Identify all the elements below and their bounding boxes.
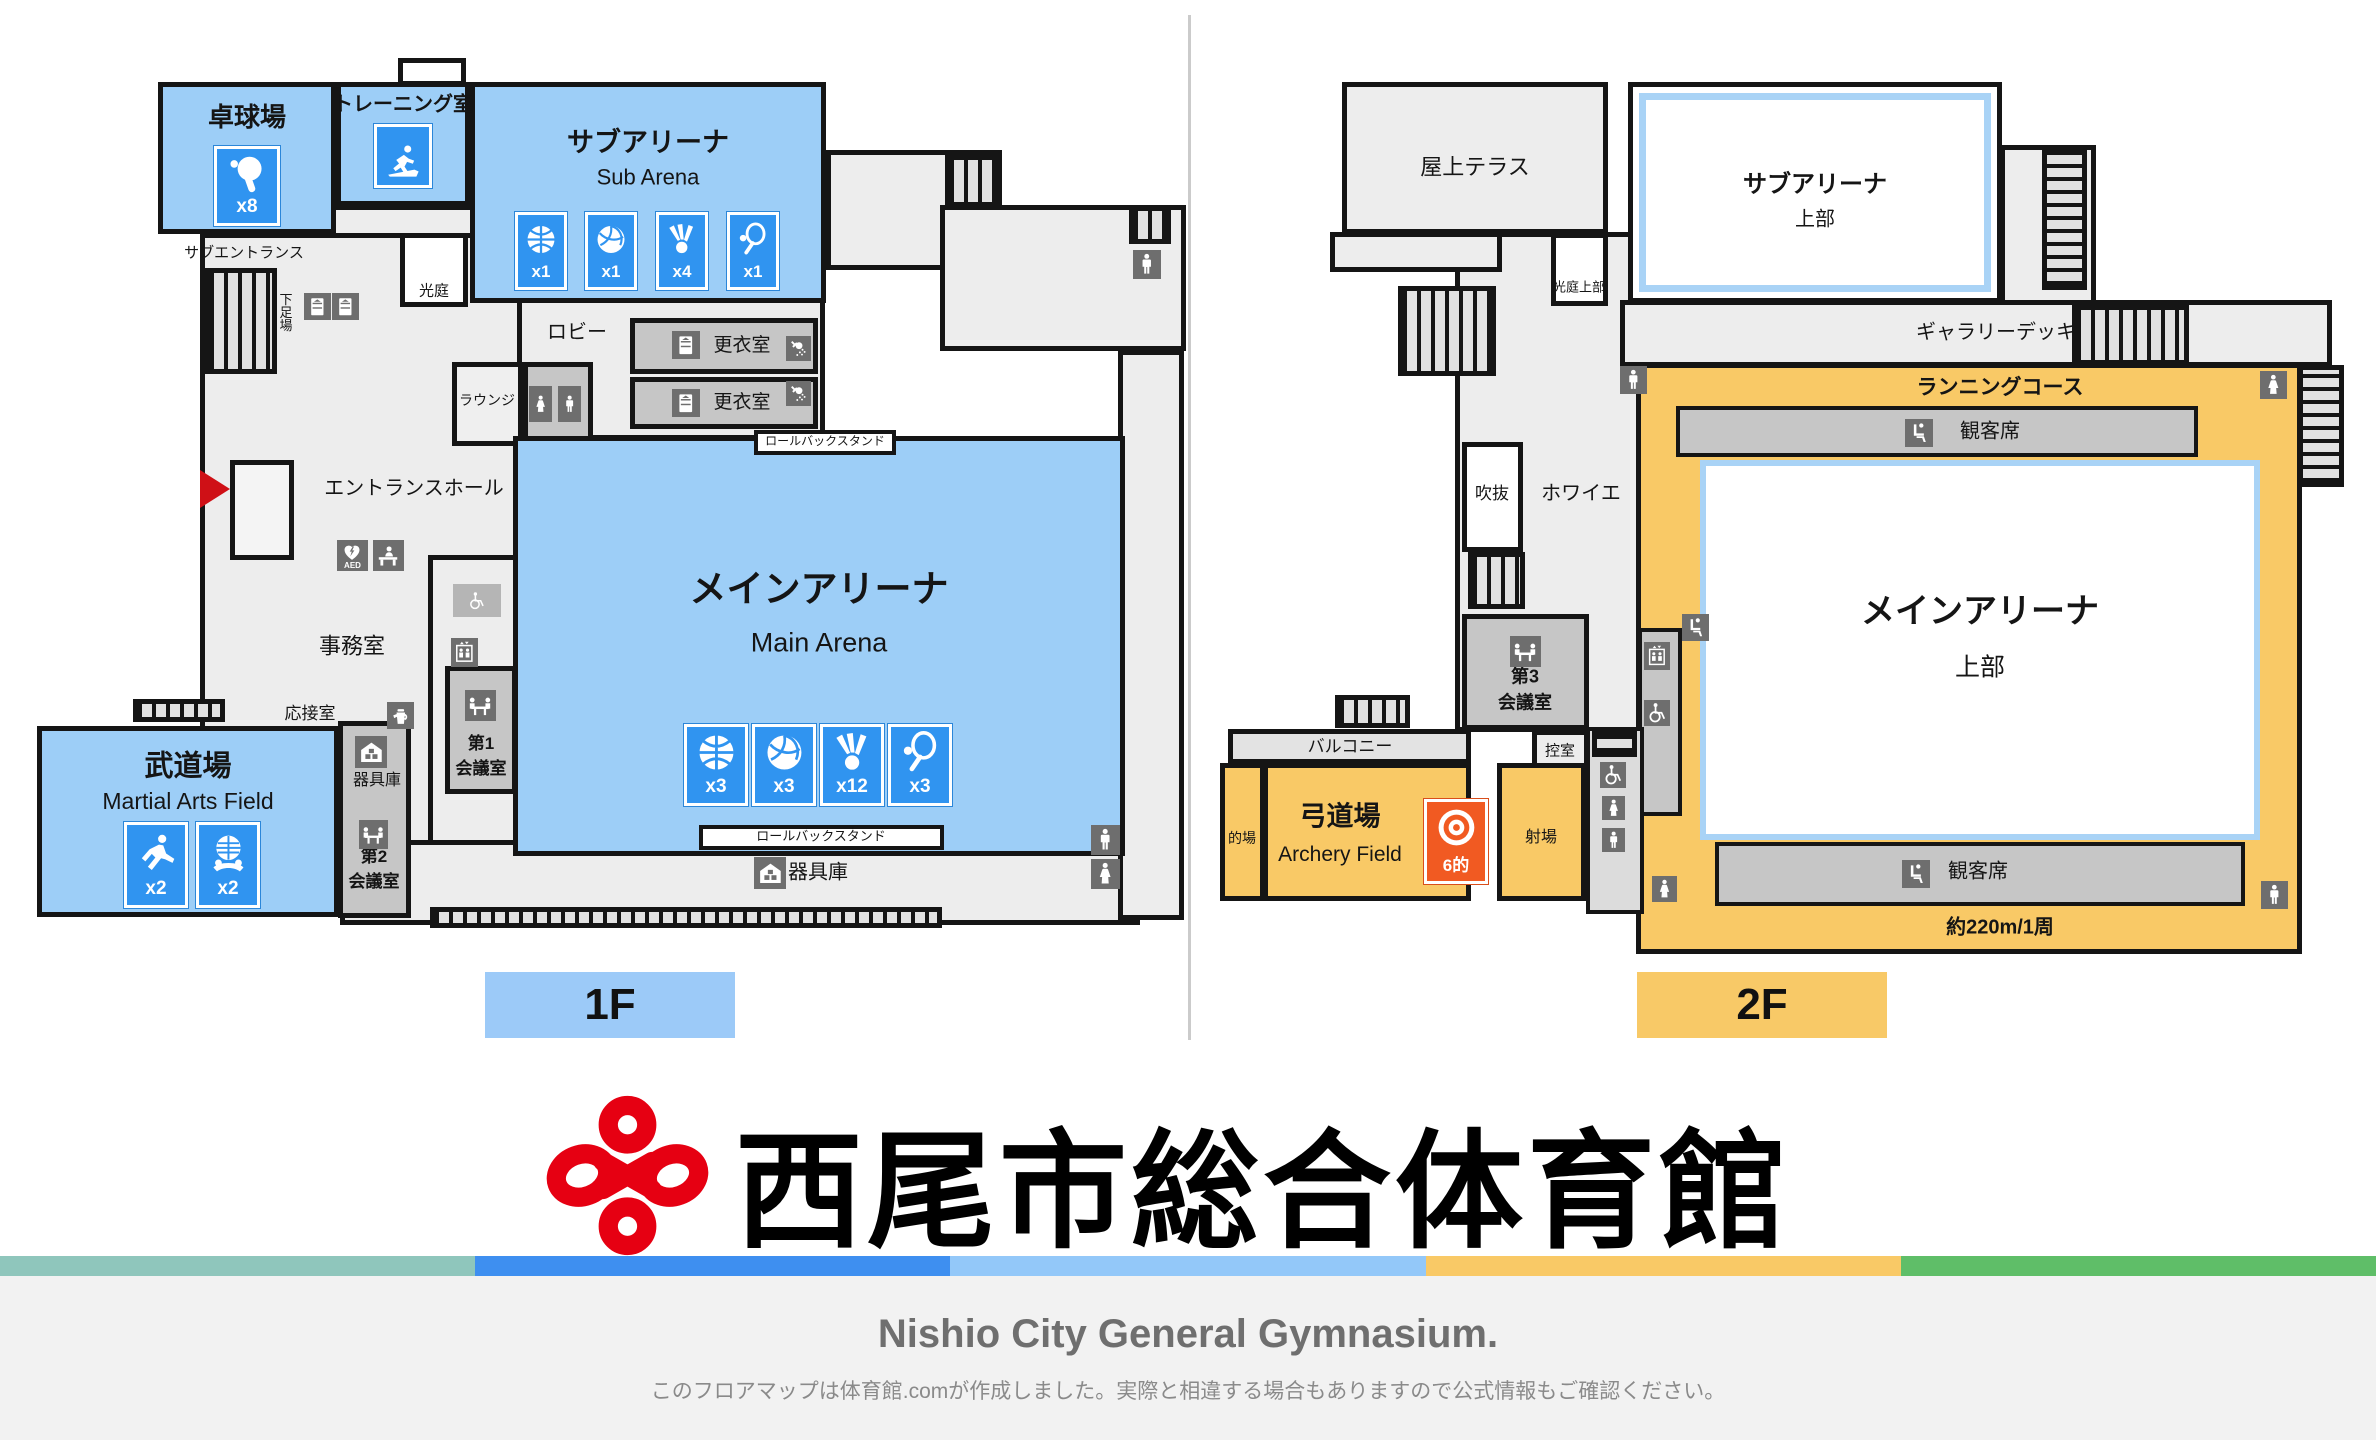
f1-label-sub-arena: サブアリーナ <box>567 127 729 158</box>
floor-badge-1f: 1F <box>485 972 735 1038</box>
f1-sub-icon-volleyball: x1 <box>585 212 637 290</box>
f2-label-main-arena-upper2: 上部 <box>1955 654 2005 683</box>
woman-toilet-icon <box>2262 373 2285 397</box>
treadmill-runner-icon <box>384 139 422 185</box>
spectator-seat-icon <box>1904 862 1928 886</box>
f1-label-main-arena-en: Main Arena <box>751 627 888 658</box>
f2-label-archery: 弓道場 <box>1300 801 1381 832</box>
f2-label-spectator-bottom: 観客席 <box>1948 861 2008 884</box>
f1-wc-corridor-top <box>1133 250 1161 279</box>
f1-label-shoe-area: 下足場 <box>277 293 292 332</box>
volleyball-icon <box>763 731 806 774</box>
footer: Nishio City General Gymnasium. このフロアマップは… <box>0 1276 2376 1440</box>
f1-label-equipment-bottom: 器具庫 <box>788 862 848 885</box>
f1-lounge-wc-man-icon <box>558 386 581 422</box>
stripe-blue <box>475 1256 950 1276</box>
floor-1f-plan: 卓球場 トレーニング室 サブアリーナ Sub Arena サブエントランス 下足… <box>0 0 1188 1040</box>
f2-label-balcony: バルコニー <box>1308 737 1393 757</box>
tennis-icon <box>899 731 942 774</box>
woman-toilet-icon <box>1654 878 1675 900</box>
f1-label-locker-2: 更衣室 <box>713 392 770 414</box>
f1-label-equipment-upper: 器具庫 <box>353 772 401 790</box>
f1-label-meeting2-line1: 第2 <box>361 847 387 867</box>
f2-stairs-mid <box>1468 552 1525 609</box>
man-toilet-icon <box>1135 252 1159 276</box>
f1-shoe-bin-icon <box>332 293 359 320</box>
f2-seat-bottom-icon <box>1902 860 1930 888</box>
wheelchair-icon <box>1602 764 1624 786</box>
archery-target-icon <box>1435 806 1478 849</box>
f1-label-sub-entrance: サブエントランス <box>184 244 304 261</box>
elevator-icon <box>453 640 476 664</box>
f1-stairs-sub-entrance <box>205 268 277 374</box>
f1-storage-bottom-icon <box>754 857 786 889</box>
f1-entrance-bump <box>230 460 294 560</box>
f2-label-gallery-deck: ギャラリーデッキ <box>1916 322 2076 345</box>
f2-label-running-course: ランニングコース <box>1917 376 2084 400</box>
f1-right-corridor <box>1118 350 1184 920</box>
f1-label-main-arena: メインアリーナ <box>690 569 949 612</box>
f2-label-waiting: 控室 <box>1545 742 1575 759</box>
f1-entrance-arrow-icon <box>200 470 230 508</box>
elevator-icon <box>1646 644 1668 668</box>
f1-label-martial-arts: 武道場 <box>144 750 231 783</box>
f1-label-martial-arts-en: Martial Arts Field <box>102 788 273 814</box>
f1-stairs-budo <box>133 699 225 722</box>
meeting-table-icon <box>467 692 493 718</box>
badminton-icon <box>831 731 874 774</box>
locker-icon <box>306 295 329 318</box>
footer-stripe-bar <box>0 1256 2376 1276</box>
f2-label-main-arena-upper1: メインアリーナ <box>1861 592 2099 631</box>
f2-room-main-arena-upper <box>1700 460 2260 840</box>
f2-wc-woman-topright <box>2260 371 2287 399</box>
f2-label-sub-arena-upper1: サブアリーナ <box>1743 171 1887 199</box>
f1-locker2-locker-icon <box>672 389 700 417</box>
basketball-icon <box>524 219 558 260</box>
f2-wc-man-topleft <box>1620 366 1647 394</box>
f1-label-entrance-hall: エントランスホール <box>324 478 504 501</box>
storage-house-icon <box>757 860 784 887</box>
woman-toilet-icon <box>1604 798 1623 818</box>
f2-label-meeting3-line2: 会議室 <box>1498 693 1552 714</box>
f1-label-meeting1-line1: 第1 <box>468 734 494 754</box>
f2-spectator-top-band <box>1676 406 2198 457</box>
stripe-lightblue <box>950 1256 1425 1276</box>
f1-icon-treadmill <box>374 124 432 188</box>
f1-shoe-locker-icon <box>304 293 331 320</box>
f2-stairs-topright <box>2042 150 2087 290</box>
f1-wc-man-bottom <box>1091 825 1120 855</box>
f1-label-rollback-top: ロールバックスタンド <box>765 435 885 449</box>
f1-lounge-wc-woman-icon <box>529 386 552 422</box>
f1-budo-icon-karate: x2 <box>124 822 188 908</box>
spectator-seat-icon <box>1907 421 1931 445</box>
man-toilet-icon <box>1622 368 1645 392</box>
f2-label-target-area: 的場 <box>1228 830 1256 846</box>
stripe-green <box>1901 1256 2376 1276</box>
f1-main-icon-badminton: x12 <box>820 724 884 806</box>
karate-icon <box>135 830 178 876</box>
locker-icon <box>674 333 698 357</box>
f2-stairs-gallery <box>2072 305 2189 365</box>
f1-main-icon-basketball: x3 <box>684 724 748 806</box>
wheelchair-icon <box>1646 702 1668 724</box>
f2-wc-woman-bottomleft <box>1652 876 1677 902</box>
f1-label-training: トレーニング室 <box>333 94 473 117</box>
meeting-table-icon <box>1512 638 1538 664</box>
floor-map-page: 卓球場 トレーニング室 サブアリーナ Sub Arena サブエントランス 下足… <box>0 0 2376 1440</box>
f2-left-wing <box>1330 232 1502 272</box>
f1-label-rollback-bottom: ロールバックスタンド <box>756 830 886 845</box>
reception-desk-icon <box>375 542 401 568</box>
f1-sub-icon-basketball: x1 <box>515 212 567 290</box>
spectator-seat-icon <box>1684 616 1707 639</box>
f1-budo-icon-kendo: x2 <box>196 822 260 908</box>
f1-label-lounge: ラウンジ <box>459 392 515 408</box>
f2-stairs-wc-column <box>1592 731 1637 757</box>
f1-locker1-shower-icon <box>786 336 811 361</box>
f2-stairs-right-outer <box>2298 365 2344 487</box>
volleyball-icon <box>594 219 628 260</box>
wheelchair-icon <box>467 587 486 615</box>
f1-main-icon-tennis: x3 <box>888 724 952 806</box>
f2-label-sub-arena-upper2: 上部 <box>1795 209 1835 232</box>
stripe-orange <box>1426 1256 1901 1276</box>
woman-toilet-icon <box>1093 861 1117 886</box>
f2-elevator-icon <box>1644 642 1670 670</box>
f2-wc-man-column <box>1602 828 1625 852</box>
f2-label-lap-length: 約220m/1周 <box>1946 917 2054 940</box>
f1-meeting2-icon <box>359 820 388 849</box>
kendo-icon <box>207 830 250 876</box>
locker-icon <box>334 295 357 318</box>
man-toilet-icon <box>560 389 579 419</box>
f2-label-foyer: ホワイエ <box>1541 483 1621 506</box>
f1-kettle-icon <box>387 702 414 729</box>
f2-seat-top-icon <box>1905 419 1933 447</box>
f2-label-shooting-area: 射場 <box>1525 829 1557 847</box>
f2-wc-man-bottomright <box>2261 881 2288 909</box>
floor-badge-2f: 2F <box>1637 972 1887 1038</box>
f1-label-reception-room: 応接室 <box>285 704 336 724</box>
f1-locker2-shower-icon <box>786 381 811 406</box>
f2-seat-left-icon <box>1682 614 1709 641</box>
f1-sub-icon-tennis: x1 <box>727 212 779 290</box>
f1-meeting1-icon <box>465 690 496 721</box>
f1-sub-icon-badminton: x4 <box>656 212 708 290</box>
f1-elevator-icon <box>451 638 478 667</box>
f2-stairs-left <box>1398 286 1496 376</box>
f2-archery-target-box: 6的 <box>1424 799 1488 884</box>
f1-locker1-locker-icon <box>672 331 700 359</box>
f1-label-light-court: 光庭 <box>419 282 449 299</box>
f1-label-lobby: ロビー <box>547 322 607 345</box>
table-tennis-icon <box>225 153 269 194</box>
tennis-icon <box>736 219 770 260</box>
f1-vent-bottom <box>430 907 942 928</box>
footer-en-title: Nishio City General Gymnasium. <box>878 1311 1498 1357</box>
f2-label-atrium: 吹抜 <box>1475 484 1509 504</box>
badminton-icon <box>665 219 699 260</box>
basketball-icon <box>695 731 738 774</box>
f1-wheelchair-wc <box>453 584 501 617</box>
f1-label-office: 事務室 <box>319 633 385 658</box>
aed-heart-icon <box>339 541 365 562</box>
f2-meeting3-icon <box>1510 636 1541 667</box>
f1-aed-icon: AED <box>337 540 368 571</box>
f1-storage-upper-icon <box>355 736 387 768</box>
f1-wc-woman-bottom <box>1091 859 1120 889</box>
f1-stairs-corridor <box>1129 206 1171 244</box>
f1-door-bump-top <box>398 58 466 86</box>
footer-note: このフロアマップは体育館.comが作成しました。実際と相違する場合もありますので… <box>651 1380 1726 1404</box>
man-toilet-icon <box>1093 827 1117 852</box>
stripe-teal <box>0 1256 475 1276</box>
man-toilet-icon <box>2263 883 2286 907</box>
f1-main-icon-volleyball: x3 <box>752 724 816 806</box>
f1-icon-table-tennis: x8 <box>214 146 280 226</box>
f1-label-meeting1-line2: 会議室 <box>456 759 507 779</box>
storage-house-icon <box>358 739 385 766</box>
f1-label-meeting2-line2: 会議室 <box>349 872 400 892</box>
f2-wc-woman-column <box>1602 796 1625 820</box>
f2-label-meeting3-line1: 第3 <box>1511 667 1539 688</box>
woman-toilet-icon <box>531 389 550 419</box>
f2-label-roof-terrace: 屋上テラス <box>1420 154 1530 179</box>
kettle-icon <box>389 704 412 727</box>
shower-icon <box>788 338 809 359</box>
meeting-table-icon <box>361 822 385 846</box>
f1-stairs-topright <box>945 155 1001 207</box>
man-toilet-icon <box>1604 830 1623 850</box>
f2-wheelchair-column-icon <box>1600 762 1626 788</box>
f2-label-spectator-top: 観客席 <box>1960 421 2020 444</box>
nishio-city-emblem-icon <box>540 1088 715 1263</box>
f2-label-light-court-upper: 光庭上部 <box>1553 281 1605 296</box>
f2-wheelchair-left-icon <box>1644 700 1670 726</box>
locker-icon <box>674 391 698 415</box>
f1-label-sub-arena-en: Sub Arena <box>597 164 700 189</box>
site-title: 西尾市総合体育館 <box>735 1100 1915 1260</box>
f1-label-table-tennis: 卓球場 <box>208 103 286 133</box>
shower-icon <box>788 383 809 404</box>
f1-reception-desk-icon <box>373 540 404 571</box>
f1-label-locker-1: 更衣室 <box>713 335 770 357</box>
floor-2f-plan: 屋上テラス サブアリーナ 上部 光庭上部 ギャラリーデッキ ランニングコース 観… <box>1188 0 2376 1040</box>
f2-stairs-balcony <box>1335 695 1410 728</box>
f2-label-archery-en: Archery Field <box>1278 843 1402 867</box>
